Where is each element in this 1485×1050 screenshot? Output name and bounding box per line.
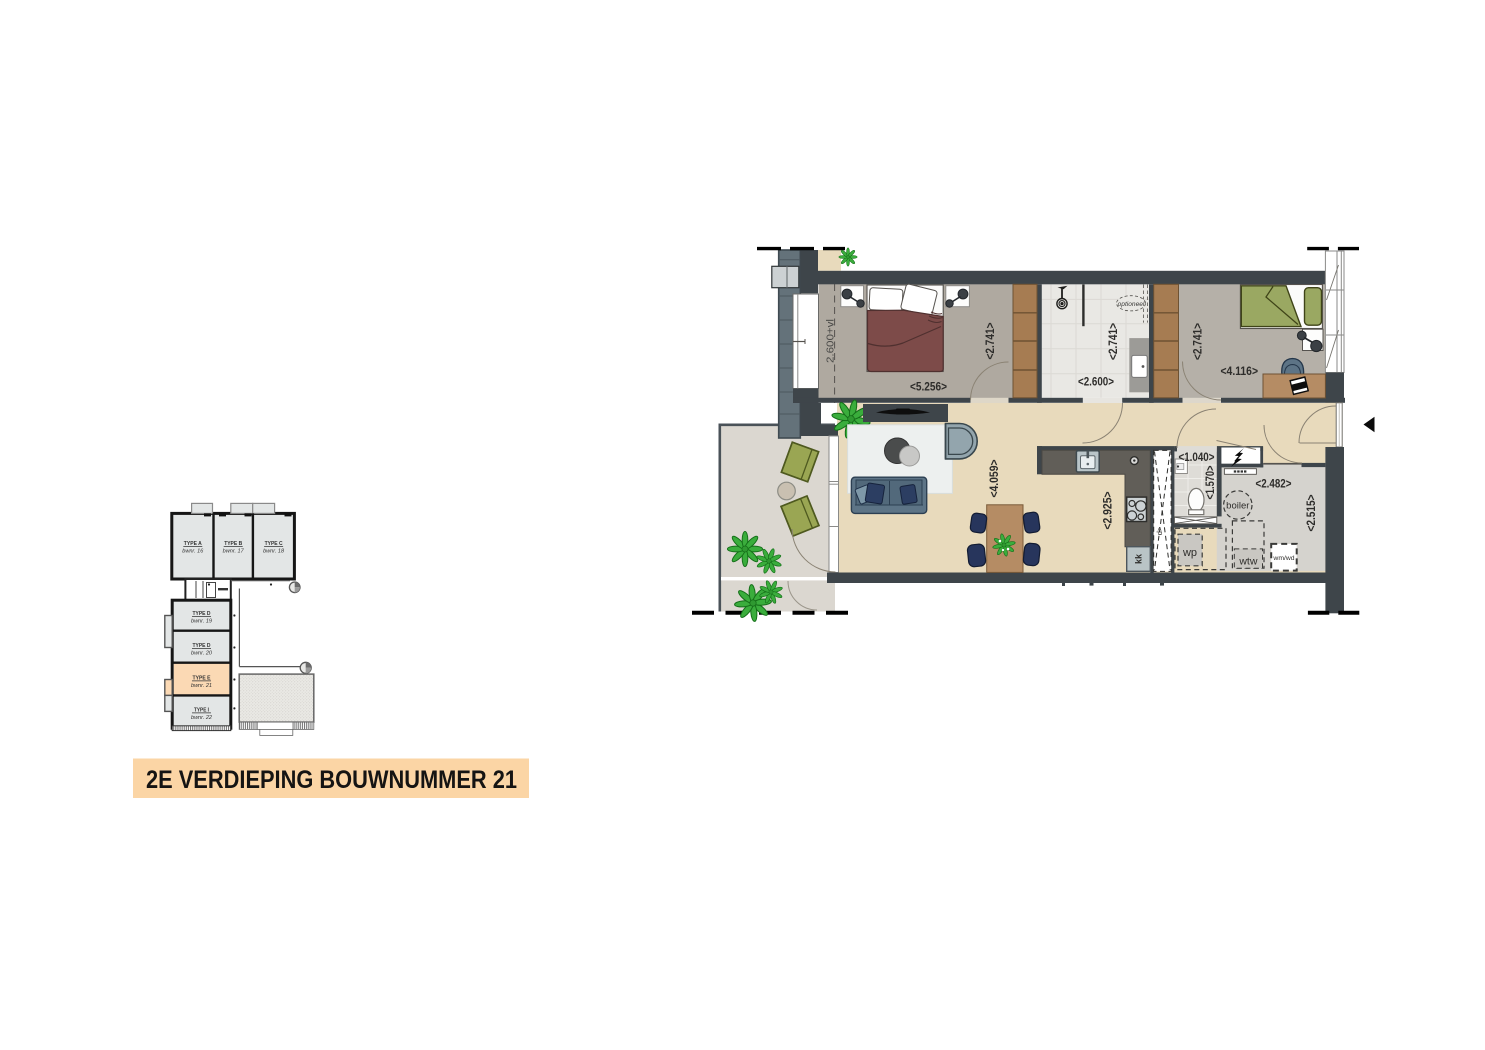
- svg-text:<2.741>: <2.741>: [1193, 323, 1205, 360]
- svg-text:<2.741>: <2.741>: [1108, 323, 1120, 360]
- svg-text:bwnr. 21: bwnr. 21: [191, 683, 212, 689]
- svg-text:bwnr. 17: bwnr. 17: [223, 549, 245, 555]
- svg-text:2E VERDIEPING BOUWNUMMER 21: 2E VERDIEPING BOUWNUMMER 21: [146, 766, 517, 794]
- svg-text:wp: wp: [1182, 547, 1197, 559]
- svg-text:<1.570>: <1.570>: [1205, 465, 1217, 499]
- svg-text:boiler: boiler: [1226, 500, 1249, 511]
- svg-text:<2.482>: <2.482>: [1256, 479, 1292, 491]
- svg-text:bwnr. 18: bwnr. 18: [263, 549, 284, 555]
- svg-text:<2.741>: <2.741>: [985, 322, 997, 359]
- svg-text:kk: kk: [1134, 553, 1144, 564]
- svg-text:optioneel: optioneel: [1118, 301, 1145, 308]
- svg-text:<5.256>: <5.256>: [910, 382, 947, 394]
- svg-text:<1.040>: <1.040>: [1179, 452, 1215, 464]
- svg-text:<4.116>: <4.116>: [1221, 366, 1259, 378]
- svg-text:<2.600>: <2.600>: [1078, 377, 1114, 389]
- svg-text:bwnr. 20: bwnr. 20: [191, 651, 212, 657]
- svg-text:bwnr. 22: bwnr. 22: [191, 715, 212, 721]
- svg-text:d>: d>: [1155, 526, 1164, 535]
- svg-text:2.600+vl: 2.600+vl: [826, 319, 837, 363]
- svg-text:bwnr. 16: bwnr. 16: [182, 549, 203, 555]
- svg-text:wtw: wtw: [1238, 556, 1258, 568]
- svg-text:<2.925>: <2.925>: [1103, 491, 1115, 529]
- svg-text:<4.059>: <4.059>: [989, 459, 1001, 497]
- svg-text:bwnr. 19: bwnr. 19: [191, 619, 212, 625]
- svg-text:wm/wd: wm/wd: [1272, 555, 1294, 562]
- svg-text:<2.515>: <2.515>: [1306, 494, 1318, 531]
